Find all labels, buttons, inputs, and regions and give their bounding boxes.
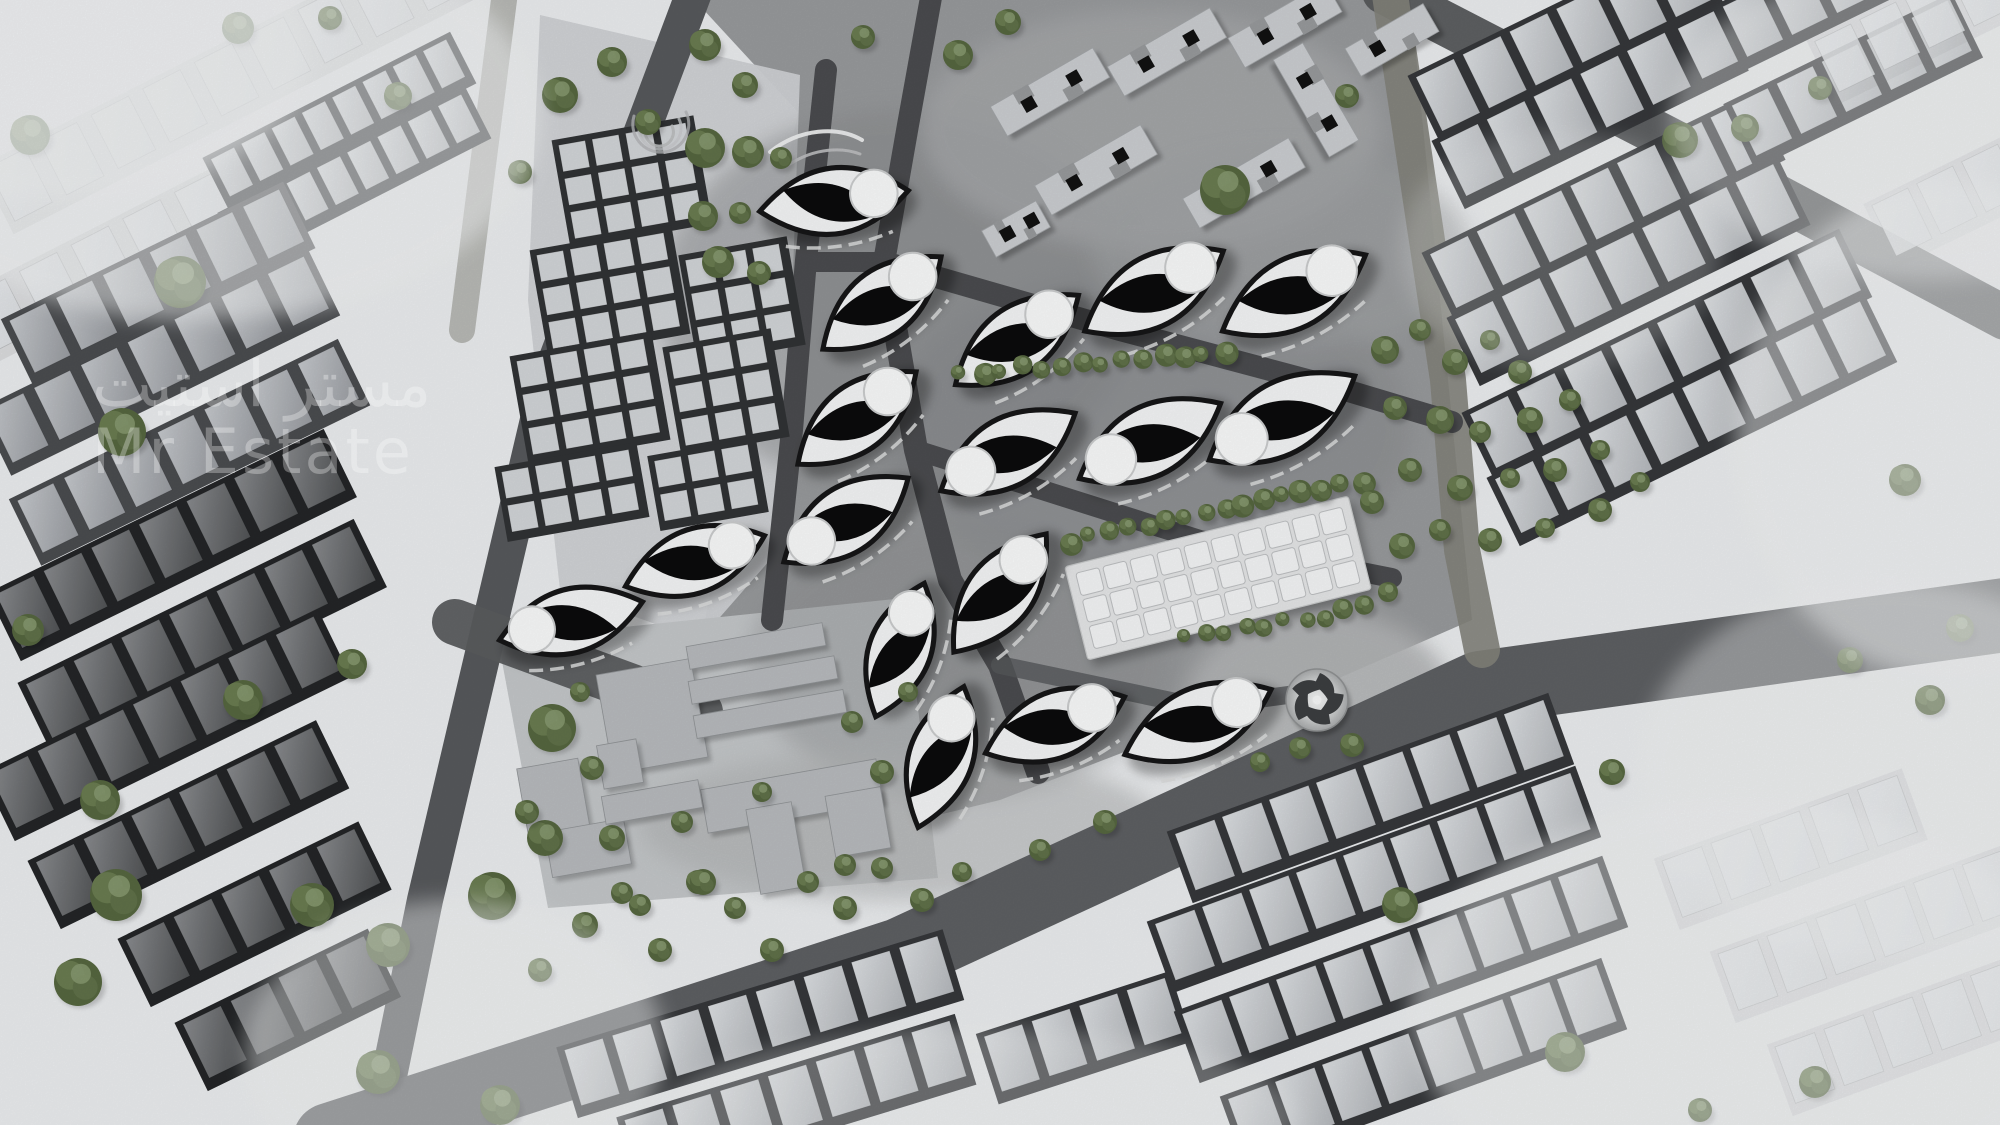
site-plan-svg bbox=[0, 0, 2000, 1125]
grain-overlay bbox=[0, 0, 2000, 1125]
masterplan-render: مستر استيت Mr Estate bbox=[0, 0, 2000, 1125]
